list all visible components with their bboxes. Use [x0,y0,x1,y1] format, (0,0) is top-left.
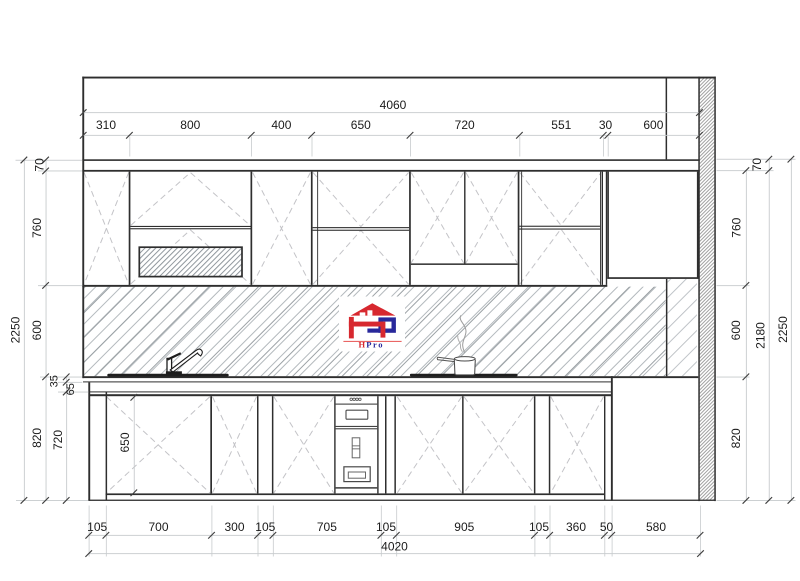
svg-text:50: 50 [600,520,614,534]
svg-text:800: 800 [180,118,200,132]
svg-text:600: 600 [30,320,44,340]
svg-text:2180: 2180 [754,322,768,349]
svg-text:Pro: Pro [366,340,384,350]
svg-text:70: 70 [750,158,764,172]
svg-text:820: 820 [729,428,743,448]
svg-text:820: 820 [30,428,44,448]
svg-text:600: 600 [729,320,743,340]
svg-text:30: 30 [599,118,613,132]
svg-text:700: 700 [148,520,168,534]
svg-text:580: 580 [646,520,666,534]
svg-text:2250: 2250 [9,316,23,343]
svg-text:760: 760 [729,217,743,237]
svg-text:551: 551 [551,118,571,132]
svg-text:105: 105 [376,520,396,534]
svg-text:70: 70 [33,158,47,172]
svg-text:310: 310 [96,118,116,132]
svg-text:300: 300 [224,520,244,534]
svg-text:650: 650 [351,118,371,132]
svg-text:360: 360 [566,520,586,534]
svg-text:105: 105 [87,520,107,534]
svg-text:400: 400 [271,118,291,132]
svg-text:2250: 2250 [776,316,790,343]
svg-text:105: 105 [255,520,275,534]
svg-text:720: 720 [455,118,475,132]
svg-text:65: 65 [65,383,77,395]
svg-text:650: 650 [118,432,132,452]
svg-text:905: 905 [454,520,474,534]
svg-text:720: 720 [51,430,65,450]
svg-text:600: 600 [643,118,663,132]
svg-text:705: 705 [317,520,337,534]
svg-text:4060: 4060 [380,98,407,112]
svg-text:105: 105 [529,520,549,534]
svg-text:H: H [358,340,365,350]
svg-text:35: 35 [49,375,61,387]
svg-text:760: 760 [30,218,44,238]
svg-text:4020: 4020 [381,540,408,554]
